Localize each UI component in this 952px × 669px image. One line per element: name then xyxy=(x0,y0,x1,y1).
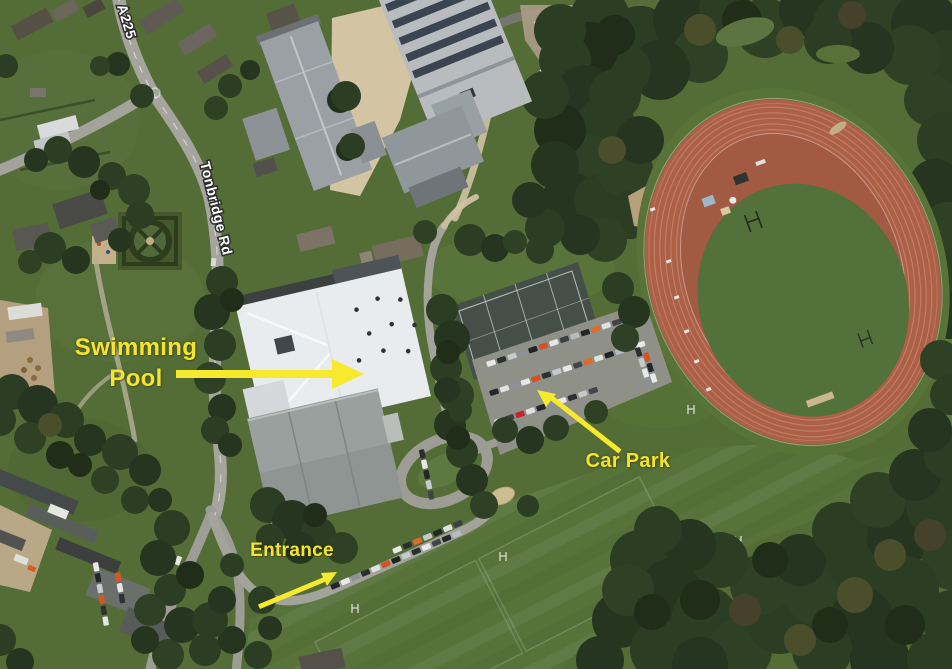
swimming-pool-label: Swimming Pool xyxy=(56,332,216,394)
swimming-pool-label-line2: Pool xyxy=(56,363,216,394)
map-canvas[interactable]: A225 Tonbridge Rd Swimming Pool Car Park… xyxy=(0,0,952,669)
car-park-label: Car Park xyxy=(570,450,686,473)
swimming-pool-label-line1: Swimming xyxy=(56,332,216,363)
entrance-label: Entrance xyxy=(241,540,343,562)
